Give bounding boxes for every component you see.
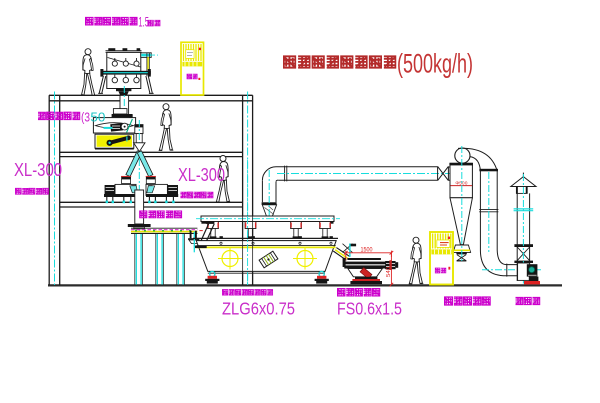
svg-text:FS0.6x1.5: FS0.6x1.5 [337, 299, 402, 319]
svg-text:XL-300: XL-300 [14, 159, 62, 180]
svg-text:(500kg/h): (500kg/h) [397, 49, 473, 79]
svg-text:1.5: 1.5 [138, 15, 149, 30]
svg-text:540: 540 [386, 267, 392, 277]
svg-text:XL-300: XL-300 [178, 164, 225, 185]
svg-text:1500: 1500 [361, 248, 374, 254]
svg-text:(3: (3 [81, 109, 90, 124]
svg-text:50: 50 [90, 109, 105, 124]
svg-text:ZLG6x0.75: ZLG6x0.75 [222, 299, 295, 319]
